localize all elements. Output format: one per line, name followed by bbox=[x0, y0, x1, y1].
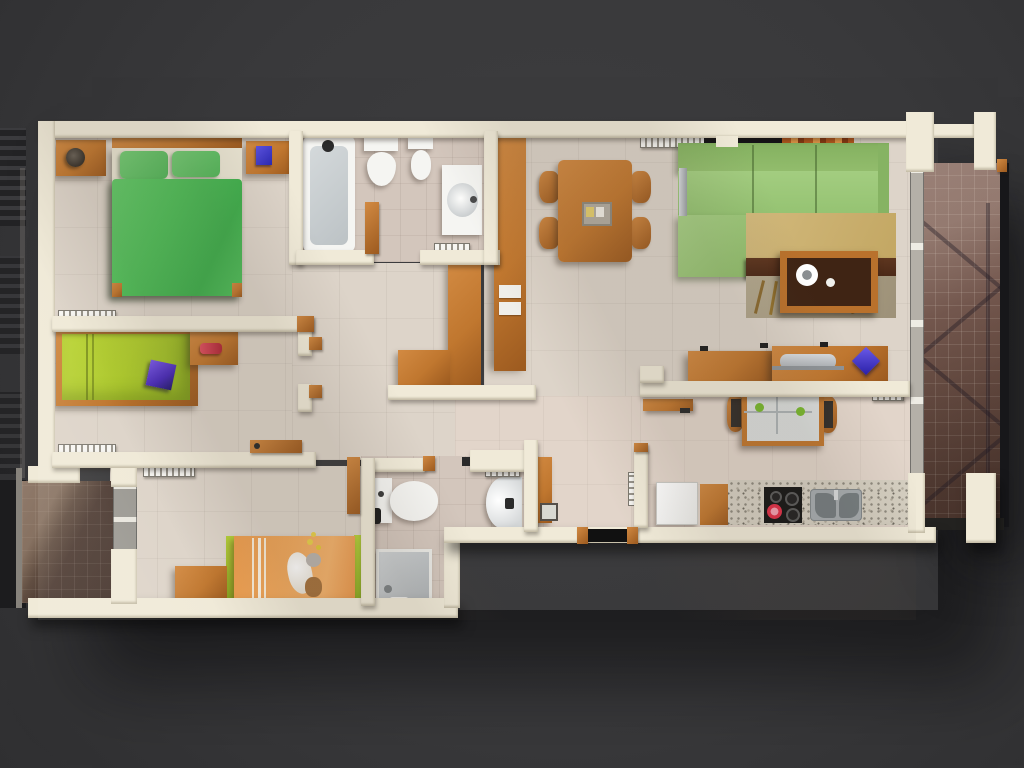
door-bath-main-leaf bbox=[365, 202, 379, 254]
wardrobe-drawer bbox=[499, 302, 521, 315]
balcony-right-sill bbox=[997, 159, 1007, 172]
door-bath2-jamb bbox=[423, 456, 435, 471]
sofa-seat bbox=[678, 171, 888, 218]
dining-chair bbox=[630, 217, 651, 249]
wall-balcony-left-stub bbox=[28, 466, 80, 483]
door-bath2-handle bbox=[462, 457, 470, 466]
bidet-bowl bbox=[411, 150, 431, 180]
bed2-seam bbox=[86, 334, 88, 400]
dining-chair bbox=[539, 217, 560, 249]
pillar-bed3-door-bottom bbox=[111, 549, 137, 604]
entry-doormat bbox=[540, 503, 558, 521]
wall-bath-main-right bbox=[484, 131, 498, 265]
apple-green bbox=[755, 403, 764, 412]
bed3-stripe bbox=[258, 538, 261, 602]
wardrobe-drawer bbox=[499, 285, 521, 298]
entry-door-opening bbox=[588, 529, 627, 542]
entry-door-jamb bbox=[577, 527, 588, 544]
desk-laptop-base bbox=[772, 366, 844, 370]
breakfast-table bbox=[742, 390, 824, 446]
teddy-print bbox=[305, 577, 322, 597]
bathtub-faucet bbox=[322, 140, 334, 152]
door-bedroom2-jamb bbox=[309, 385, 322, 398]
pillar-h-cross bbox=[934, 124, 974, 138]
pillar-bed3-door-top bbox=[111, 468, 137, 487]
hall-sideboard-vertical bbox=[448, 263, 481, 385]
door-bedroom2-jamb bbox=[309, 337, 322, 350]
background-ledge bbox=[20, 168, 25, 478]
wall-bath-main-bottom-left bbox=[296, 250, 374, 265]
coffee-table-cup bbox=[826, 278, 835, 287]
balcony-left-tiles bbox=[22, 481, 114, 603]
desk-gadget bbox=[700, 346, 708, 351]
door-bath2-leaf bbox=[347, 457, 360, 514]
office-desk-left bbox=[688, 351, 774, 381]
pillar-h-left bbox=[906, 112, 934, 172]
sofa-cushion-seam bbox=[815, 145, 817, 217]
bidet-tank bbox=[408, 137, 433, 149]
door-master-jamb bbox=[297, 316, 314, 332]
desk-gadget bbox=[760, 343, 768, 348]
fridge bbox=[656, 482, 698, 525]
sink-basin-left bbox=[815, 493, 836, 518]
shelf-bracket bbox=[680, 408, 690, 413]
round-wall-sink bbox=[486, 477, 522, 529]
burner bbox=[786, 508, 800, 522]
star-print bbox=[316, 545, 321, 550]
kitchen-cabinet bbox=[700, 484, 728, 525]
bed2-seam bbox=[92, 334, 94, 400]
floor-lamp bbox=[679, 168, 687, 216]
pillar-kitchen-right bbox=[908, 473, 925, 533]
sink-faucet bbox=[834, 490, 838, 500]
toilet2-button bbox=[378, 491, 384, 497]
breakfast-table-seam-v bbox=[776, 392, 778, 434]
wall-hall-mid bbox=[388, 385, 536, 400]
wall-master-right bbox=[289, 131, 303, 265]
sofa-cushion-seam bbox=[752, 145, 754, 217]
sofa-chaise bbox=[678, 215, 755, 277]
star-print bbox=[307, 539, 313, 545]
wall-bath2-left bbox=[361, 458, 375, 606]
tray-item bbox=[596, 207, 604, 217]
wall-bath2-right bbox=[524, 440, 538, 532]
red-toy bbox=[200, 343, 222, 354]
sink-tap bbox=[470, 196, 477, 203]
balcony-right-outer-frame bbox=[1000, 163, 1009, 527]
red-pot bbox=[767, 504, 782, 519]
wall-living-kitchen bbox=[640, 381, 910, 397]
wall-left bbox=[38, 121, 55, 473]
hall-sideboard-foot bbox=[398, 350, 450, 385]
kitchen-chair-left-seat bbox=[731, 399, 741, 427]
star-print bbox=[311, 532, 316, 537]
kitchen-wall-cap bbox=[634, 443, 648, 452]
sheep-print-head bbox=[306, 553, 321, 567]
wall-kitchen-left bbox=[634, 446, 648, 528]
burner bbox=[785, 492, 799, 506]
balcony-left bbox=[22, 481, 114, 603]
bathtub-basin bbox=[310, 146, 348, 245]
pillow-left bbox=[120, 151, 168, 179]
background-structure bbox=[0, 392, 22, 474]
bed3-stripe bbox=[264, 538, 266, 602]
green-duvet bbox=[112, 179, 242, 296]
pillar-bottom-right bbox=[966, 473, 996, 543]
bedroom3-side-table bbox=[175, 566, 227, 602]
shower-drain bbox=[384, 585, 392, 593]
wall-step bbox=[444, 536, 460, 608]
door-bedroom3-handle bbox=[254, 443, 260, 449]
wall-bottom-right bbox=[444, 527, 936, 543]
coffee-table-plate bbox=[796, 264, 818, 286]
sink2-tap bbox=[505, 498, 514, 509]
wall-bedroom2-south bbox=[52, 452, 316, 468]
living-room-glass-wall bbox=[910, 166, 924, 474]
sofa-back bbox=[678, 143, 888, 173]
pillar-h-right bbox=[974, 112, 996, 170]
kitchen-chair-right-seat bbox=[823, 401, 833, 428]
blue-book bbox=[256, 146, 272, 165]
entry-door-jamb bbox=[627, 527, 638, 544]
pillow-right bbox=[172, 151, 220, 177]
burner bbox=[770, 491, 782, 503]
bedroom3-balcony-glass-door bbox=[113, 486, 137, 550]
toilet2-bowl bbox=[390, 481, 438, 521]
wall-bath2-top-right bbox=[470, 450, 530, 472]
floorplan-render bbox=[0, 0, 1024, 768]
wall-master-south bbox=[52, 316, 314, 332]
sofa-armrest-right bbox=[878, 143, 889, 218]
railing-shadow-vertical bbox=[986, 203, 990, 503]
purple-laptop bbox=[146, 360, 177, 391]
bed3-stripe bbox=[252, 538, 254, 602]
bed-foot-post bbox=[232, 283, 242, 297]
wall-living-kitchen-return bbox=[640, 366, 664, 383]
dining-chair bbox=[539, 171, 560, 203]
desk-gadget bbox=[820, 342, 828, 347]
wall-bottom-left bbox=[28, 598, 458, 618]
wall-nub-living bbox=[716, 136, 738, 147]
table-lamp bbox=[66, 148, 85, 167]
tray-item bbox=[586, 207, 594, 217]
bed-foot-post bbox=[112, 283, 122, 297]
apple-green bbox=[796, 407, 805, 416]
dining-chair bbox=[630, 171, 651, 203]
sink-basin-right bbox=[839, 493, 859, 518]
